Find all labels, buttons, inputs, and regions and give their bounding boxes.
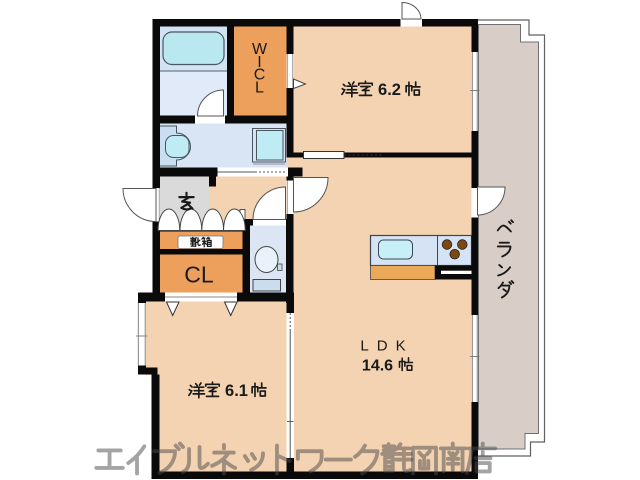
svg-text:14.6: 14.6 [362,358,393,375]
svg-text:CL: CL [184,262,214,288]
svg-text:LDK: LDK [360,338,413,355]
svg-text:L: L [255,80,264,97]
svg-text:6.1: 6.1 [225,382,248,400]
svg-text:6.2: 6.2 [378,81,401,99]
